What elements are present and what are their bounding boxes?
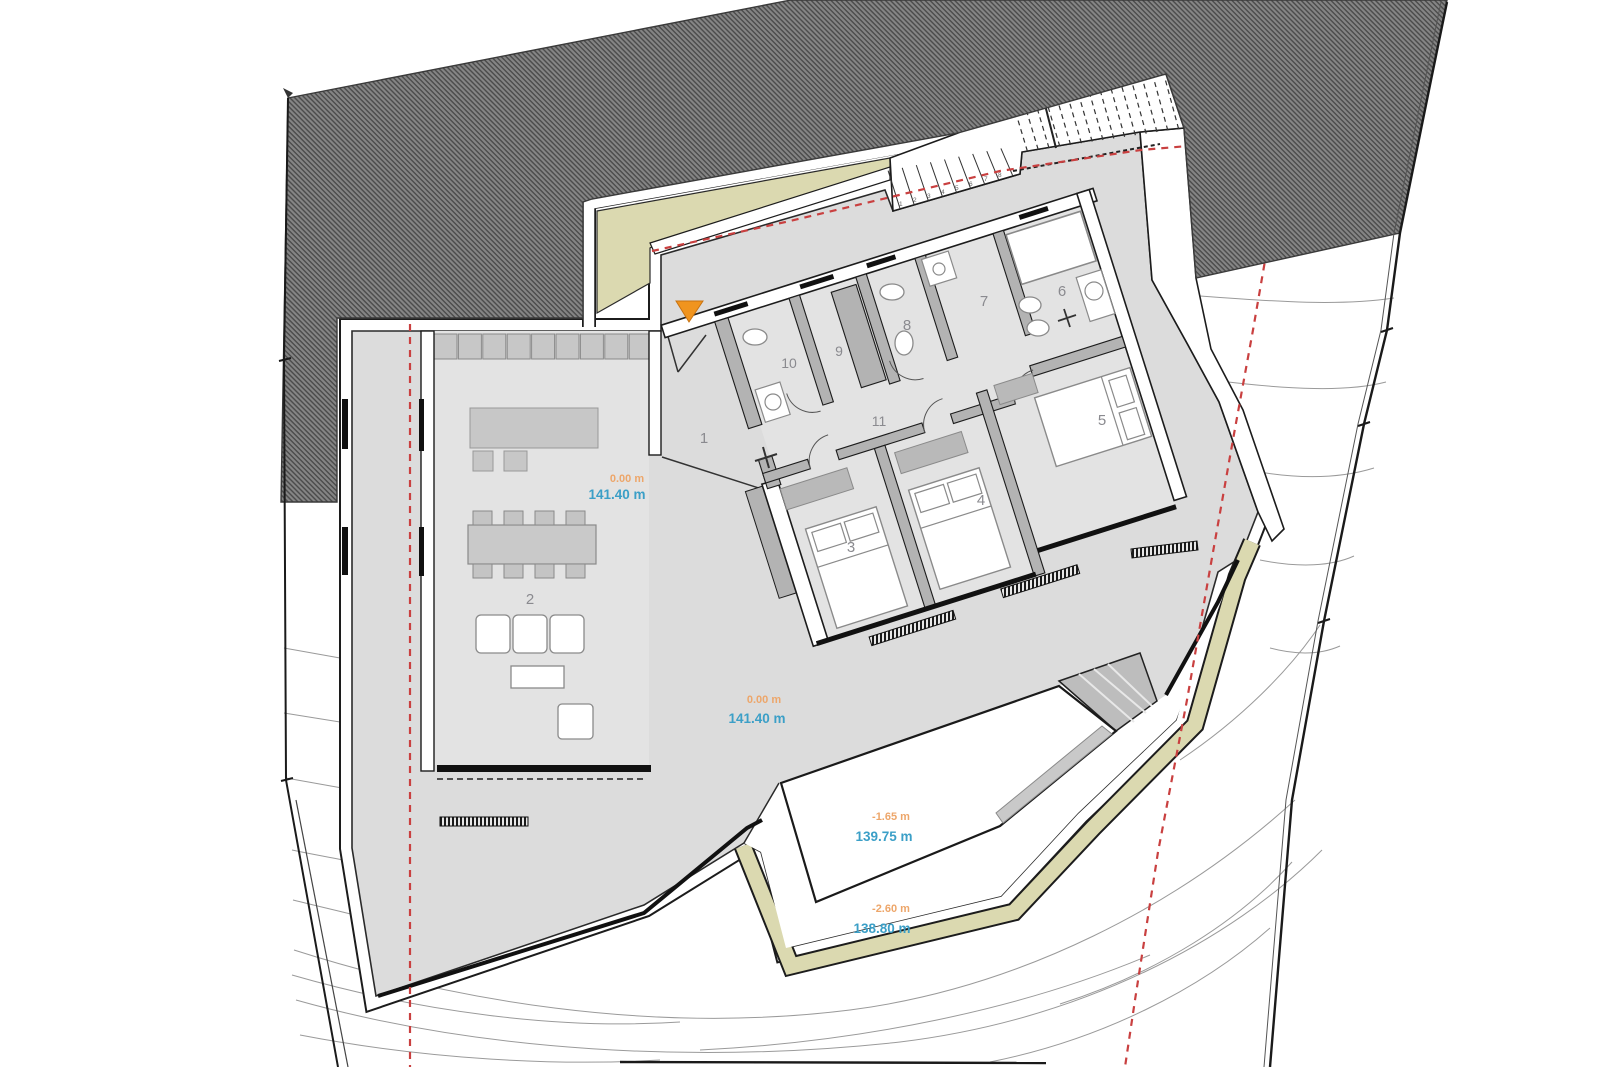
svg-text:4: 4 (941, 189, 945, 196)
svg-text:6: 6 (1058, 283, 1066, 300)
svg-text:9: 9 (835, 343, 843, 359)
svg-text:3: 3 (927, 193, 931, 200)
svg-text:1: 1 (899, 201, 903, 208)
svg-text:5: 5 (955, 185, 959, 192)
svg-text:11: 11 (872, 413, 887, 429)
svg-text:7: 7 (984, 176, 988, 183)
svg-text:0.00 m: 0.00 m (747, 694, 781, 706)
svg-text:139.75 m: 139.75 m (855, 829, 912, 844)
svg-text:8: 8 (903, 317, 911, 334)
svg-text:6: 6 (969, 181, 973, 188)
svg-text:0.00 m: 0.00 m (610, 473, 644, 485)
svg-text:2: 2 (913, 197, 917, 204)
svg-text:4: 4 (977, 492, 985, 509)
svg-text:138.80 m: 138.80 m (853, 921, 910, 936)
svg-text:-2.60 m: -2.60 m (872, 903, 910, 915)
svg-text:2: 2 (526, 591, 534, 608)
svg-text:-1.65 m: -1.65 m (872, 811, 910, 823)
svg-text:5: 5 (1098, 412, 1106, 429)
svg-text:141.40 m: 141.40 m (588, 487, 645, 502)
svg-text:3: 3 (847, 539, 855, 556)
svg-text:10: 10 (781, 355, 797, 371)
svg-text:7: 7 (980, 293, 988, 310)
svg-text:1: 1 (700, 430, 708, 447)
svg-text:8: 8 (998, 172, 1002, 179)
svg-text:141.40 m: 141.40 m (728, 711, 785, 726)
